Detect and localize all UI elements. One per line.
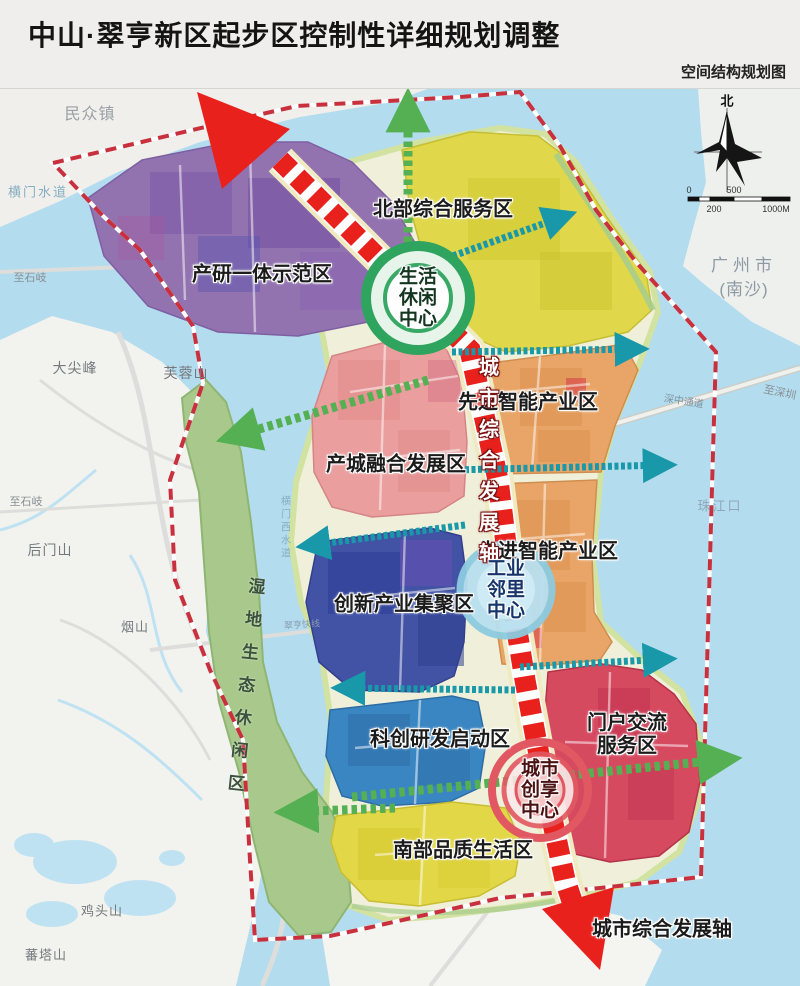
map-canvas bbox=[0, 0, 800, 986]
scale-200: 200 bbox=[706, 204, 721, 214]
header: 中山·翠亨新区起步区控制性详细规划调整 空间结构规划图 bbox=[0, 0, 800, 89]
life-leisure-center-circle bbox=[366, 246, 470, 350]
planning-map-page: 中山·翠亨新区起步区控制性详细规划调整 空间结构规划图 产研一体示范区 北部综合… bbox=[0, 0, 800, 986]
map-subtitle: 空间结构规划图 bbox=[681, 61, 786, 82]
page-title: 中山·翠亨新区起步区控制性详细规划调整 bbox=[0, 0, 800, 54]
scale-bar bbox=[688, 197, 790, 201]
scale-500: 500 bbox=[726, 185, 741, 195]
scale-zero: 0 bbox=[686, 185, 691, 195]
industry-neighborhood-center-circle bbox=[460, 544, 552, 636]
scale-1000: 1000M bbox=[762, 204, 790, 214]
city-creative-center-circle bbox=[492, 742, 588, 838]
teal-arrow-east1 bbox=[452, 349, 640, 352]
